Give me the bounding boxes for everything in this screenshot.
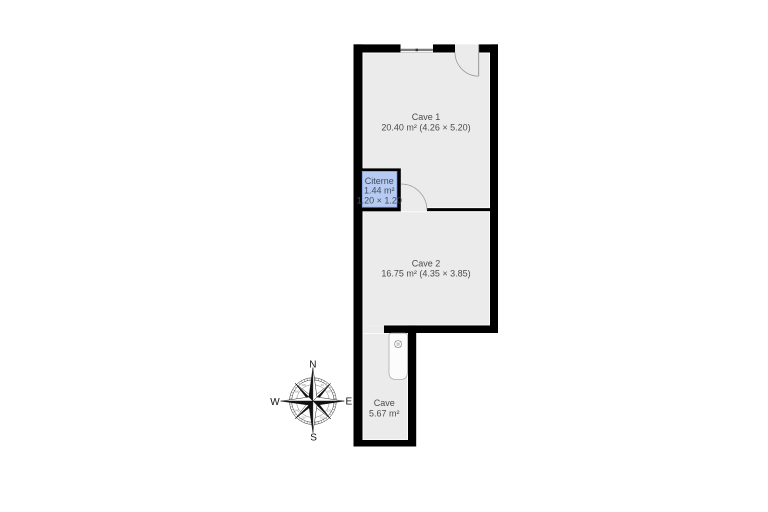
svg-text:S: S xyxy=(310,433,317,444)
svg-text:Cave 1: Cave 1 xyxy=(412,112,441,122)
svg-text:300: 300 xyxy=(294,390,299,394)
svg-text:Cave 2: Cave 2 xyxy=(412,259,441,269)
svg-text:Citerne: Citerne xyxy=(365,176,394,186)
svg-text:1.44 m²: 1.44 m² xyxy=(364,186,395,196)
svg-text:150: 150 xyxy=(320,416,325,420)
svg-text:N: N xyxy=(309,360,316,371)
svg-text:240: 240 xyxy=(294,409,299,413)
svg-text:60: 60 xyxy=(327,390,331,394)
svg-text:16.75 m² (4.35 × 3.85): 16.75 m² (4.35 × 3.85) xyxy=(381,269,470,279)
svg-text:30: 30 xyxy=(321,383,325,387)
svg-text:20.40 m² (4.26 × 5.20): 20.40 m² (4.26 × 5.20) xyxy=(381,122,470,132)
svg-text:W: W xyxy=(270,397,280,408)
svg-text:120: 120 xyxy=(327,409,332,413)
svg-text:E: E xyxy=(346,396,353,407)
svg-text:5.67 m²: 5.67 m² xyxy=(369,409,400,419)
svg-text:Cave: Cave xyxy=(374,398,395,408)
svg-text:1.20 × 1.20: 1.20 × 1.20 xyxy=(357,195,402,205)
svg-text:210: 210 xyxy=(301,416,306,420)
svg-text:330: 330 xyxy=(301,383,306,387)
